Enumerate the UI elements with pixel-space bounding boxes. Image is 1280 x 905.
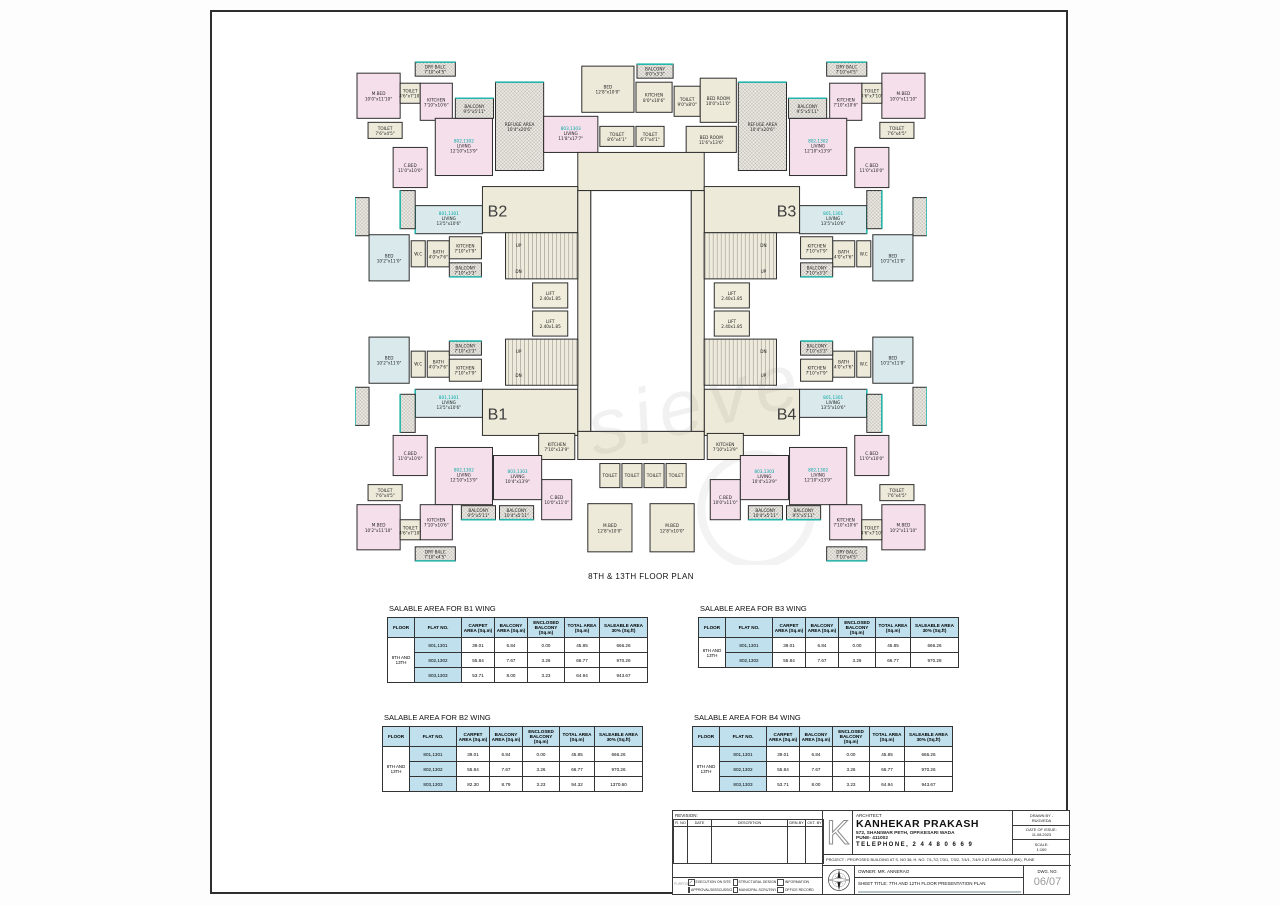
room-rect xyxy=(355,387,369,425)
room-dims-label: 7'10"x4'5" xyxy=(836,70,858,75)
table-cell: 802,1302 xyxy=(415,653,462,668)
room-dims-label: 12'8"x10'0" xyxy=(598,528,623,533)
table-row: 802,130255.847.673.2666.77970.26 xyxy=(388,653,648,668)
revision-header-cell: R. NO xyxy=(674,820,688,827)
stair-direction-label: UP xyxy=(516,349,522,354)
owner-row: OWNER: MR. ANNERAO SHEET TITLE: 7TH AND … xyxy=(823,866,1071,894)
room-dims-label: 13'5"x10'6" xyxy=(436,221,461,226)
room-rect xyxy=(691,191,704,432)
room-dims-label: 10'4"x13'9" xyxy=(752,479,777,484)
room-label: TOILET xyxy=(602,473,618,478)
room-dims-label: 10'0"x11'0" xyxy=(544,500,569,505)
room-dims-label: 9'5"x5'11" xyxy=(463,109,485,114)
room-dims-label: 9'5"x5'11" xyxy=(793,513,815,518)
room-dims-label: 2.40x1.85 xyxy=(721,296,743,301)
table-cell: 801,1301 xyxy=(720,747,767,762)
room-rect xyxy=(578,191,591,432)
table-cell: 0.00 xyxy=(528,638,565,653)
stair-direction-label: DN xyxy=(515,269,521,274)
drawn-by-cell: DRAWN BY - RUGVEDA xyxy=(1013,811,1070,826)
k-logo-icon: K xyxy=(825,814,851,852)
room-dims-label: 12'8"x10'0" xyxy=(596,90,621,95)
room-dims-label: 11'0"x10'0" xyxy=(859,456,884,461)
room-dims-label: 8'0"x3'3" xyxy=(645,72,664,77)
table-cell: 0.00 xyxy=(523,747,560,762)
stair-direction-label: UP xyxy=(516,243,522,248)
drawn-by-value: RUGVEDA xyxy=(1013,818,1070,823)
room-dims-label: 7'6"x4'5" xyxy=(887,493,906,498)
purpose-item: ✓EXECUTION ON SITE xyxy=(688,879,732,886)
stair-direction-label: DN xyxy=(515,373,521,378)
table-cell: 801,1301 xyxy=(726,638,773,653)
revision-empty-row xyxy=(674,827,824,864)
table-cell: 7.67 xyxy=(490,762,523,777)
room-dims-label: 9'5"x5'11" xyxy=(467,513,489,518)
room-dims-label: 10'2"x11'10" xyxy=(890,528,917,533)
table-cell: 970.26 xyxy=(905,762,953,777)
room-dims-label: 10'4"x20'6" xyxy=(750,127,775,132)
table-header-row: FLOORFLAT NO.CARPET AREA (Sq.m)BALCONY A… xyxy=(388,618,648,638)
table-cell: 3.23 xyxy=(523,777,560,792)
drawing-info-column: DRAWN BY - RUGVEDA DATE OF ISSUE: 11.08.… xyxy=(1012,811,1070,854)
table-cell: 802,1302 xyxy=(720,762,767,777)
sheet-title-line: SHEET TITLE: 7TH AND 12TH FLOOR PRESENTA… xyxy=(855,878,1023,890)
table-cell: 803,1303 xyxy=(410,777,457,792)
purpose-item-label: STRUCTURAL DESIGN xyxy=(739,880,777,884)
floor-cell: 8TH AND 13TH xyxy=(693,747,720,792)
room-dims-label: 10'2"x11'0" xyxy=(377,258,402,263)
salable-area-table-b3: SALABLE AREA FOR B3 WING FLOORFLAT NO.CA… xyxy=(698,604,959,668)
table-cell: 666.26 xyxy=(911,638,959,653)
purpose-item: OFFICE RECORD xyxy=(777,887,821,894)
room-dims-label: 4'6"x7'10" xyxy=(861,530,883,535)
room-dims-label: 4'6"x7'10" xyxy=(399,530,421,535)
stair-direction-label: UP xyxy=(761,269,767,274)
room-dims-label: 7'10"x4'5" xyxy=(424,70,446,75)
salable-table: FLOORFLAT NO.CARPET AREA (Sq.m)BALCONY A… xyxy=(382,726,643,792)
room-dims-label: 8'0"x10'6" xyxy=(643,98,665,103)
checkbox-icon[interactable] xyxy=(733,879,738,886)
room-rect xyxy=(867,394,882,432)
room-dims-label: 7'10"x7'9" xyxy=(806,371,828,376)
table-header-cell: CARPET AREA (Sq.m) xyxy=(462,618,495,638)
table-title: SALABLE AREA FOR B4 WING xyxy=(694,713,953,722)
room-dims-label: 11'0"x10'0" xyxy=(398,168,423,173)
table-cell: 3.23 xyxy=(833,777,870,792)
room-dims-label: 13'5"x10'6" xyxy=(436,405,461,410)
table-row: 8TH AND 13TH801,130139.016.840.0045.8566… xyxy=(383,747,643,762)
table-cell: 7.67 xyxy=(495,653,528,668)
table-row: 803,130353.718.003.2364.94943.67 xyxy=(388,668,648,683)
table-cell: 39.01 xyxy=(767,747,800,762)
project-line: PROJECT : PROPOSED BUILDING AT S. NO 36,… xyxy=(823,854,1071,866)
revision-headers: R. NODATEDESCRITIONDRN.BYCKT. BY xyxy=(674,820,824,827)
salable-table: FLOORFLAT NO.CARPET AREA (Sq.m)BALCONY A… xyxy=(698,617,959,668)
table-header-cell: SALEABLE AREA 30% (Sq.ft) xyxy=(595,727,643,747)
purpose-item-label: OFFICE RECORD xyxy=(785,888,814,892)
room-dims-label: 7'6"x4'5" xyxy=(375,493,394,498)
room-rect xyxy=(913,387,927,425)
date-value: 11.08.2023 xyxy=(1013,832,1070,837)
table-header-cell: FLAT NO. xyxy=(726,618,773,638)
room-dims-label: 7'10"x13'9" xyxy=(544,447,569,452)
checkbox-icon[interactable] xyxy=(733,887,738,894)
table-cell: 39.01 xyxy=(462,638,495,653)
salable-area-table-b2: SALABLE AREA FOR B2 WING FLOORFLAT NO.CA… xyxy=(382,713,643,792)
table-header-cell: ENCLOSED BALCONY (Sq.m) xyxy=(523,727,560,747)
table-cell: 66.77 xyxy=(560,762,595,777)
table-cell: 801,1301 xyxy=(415,638,462,653)
room-dims-label: 7'10"x3'3" xyxy=(454,349,476,354)
room-dims-label: 10'2"x11'0" xyxy=(377,361,402,366)
room-dims-label: 10'2"x11'10" xyxy=(365,528,392,533)
wing-label-b1: B1 xyxy=(488,405,508,423)
room-dims-label: 10'2"x11'0" xyxy=(881,258,906,263)
room-dims-label: 10'2"x11'0" xyxy=(881,361,906,366)
table-header-cell: BALCONY AREA (Sq.m) xyxy=(495,618,528,638)
checkbox-icon[interactable] xyxy=(777,887,784,894)
room-dims-label: 12'8"x10'0" xyxy=(660,528,685,533)
room-dims-label: 2.40x1.85 xyxy=(721,324,743,329)
room-dims-label: 10'4"x5'11" xyxy=(504,513,529,518)
room-dims-label: 7'10"x3'3" xyxy=(806,270,828,275)
table-cell: 8.79 xyxy=(490,777,523,792)
revision-header-cell: DATE xyxy=(688,820,712,827)
table-row: 802,130255.847.673.2666.77970.26 xyxy=(693,762,953,777)
architect-logo: K xyxy=(823,811,853,854)
dwg-no-value: 06/07 xyxy=(1024,876,1071,888)
revision-header-cell: DRN.BY xyxy=(788,820,806,827)
room-dims-label: 10'0"x11'10" xyxy=(365,96,392,101)
room-dims-label: 7'6"x4'5" xyxy=(887,131,906,136)
table-cell: 6.84 xyxy=(800,747,833,762)
room-dims-label: 7'10"x3'3" xyxy=(454,270,476,275)
room-dims-label: 7'10"x13'9" xyxy=(713,447,738,452)
table-cell: 666.26 xyxy=(905,747,953,762)
table-cell: 8.00 xyxy=(800,777,833,792)
table-row: 802,130255.847.673.2666.77970.26 xyxy=(383,762,643,777)
table-cell: 6.84 xyxy=(495,638,528,653)
room-dims-label: 7'10"x7'9" xyxy=(454,371,476,376)
table-header-cell: SALEABLE AREA 30% (Sq.ft) xyxy=(911,618,959,638)
table-header-cell: BALCONY AREA (Sq.m) xyxy=(806,618,839,638)
table-header-cell: FLOOR xyxy=(383,727,410,747)
room-dims-label: 6'7"x4'1" xyxy=(640,137,659,142)
salable-area-table-b4: SALABLE AREA FOR B4 WING FLOORFLAT NO.CA… xyxy=(692,713,953,792)
room-dims-label: 10'4"x5'11" xyxy=(753,513,778,518)
wing-label-b2: B2 xyxy=(488,203,508,221)
table-header-cell: FLAT NO. xyxy=(720,727,767,747)
table-header-row: FLOORFLAT NO.CARPET AREA (Sq.m)BALCONY A… xyxy=(383,727,643,747)
wing-label-b3: B3 xyxy=(777,203,797,221)
purpose-item-label: EXECUTION ON SITE xyxy=(696,880,731,884)
table-row: 8TH AND 13TH801,130139.016.840.0045.8566… xyxy=(693,747,953,762)
room-dims-label: 7'10"x10'6" xyxy=(833,523,858,528)
table-header-cell: ENCLOSED BALCONY (Sq.m) xyxy=(528,618,565,638)
floor-cell: 8TH AND 13TH xyxy=(388,638,415,683)
drawing-sheet: REFUGE AREA10'4"x20'6"REFUGE AREA10'4"x2… xyxy=(210,10,1068,894)
table-cell: 55.84 xyxy=(767,762,800,777)
room-dims-label: 7'10"x7'9" xyxy=(454,248,476,253)
table-header-cell: CARPET AREA (Sq.m) xyxy=(457,727,490,747)
table-header-cell: SALEABLE AREA 30% (Sq.ft) xyxy=(600,618,648,638)
table-header-cell: FLOOR xyxy=(699,618,726,638)
purpose-label: PURPOSE xyxy=(674,879,688,893)
room-dims-label: 11'0"x10'0" xyxy=(398,456,423,461)
room-dims-label: 12'10"x13'9" xyxy=(450,478,477,483)
table-cell: 3.26 xyxy=(523,762,560,777)
table-cell: 53.71 xyxy=(767,777,800,792)
table-title: SALABLE AREA FOR B1 WING xyxy=(389,604,648,613)
revision-label: REVISION: xyxy=(673,811,822,819)
room-dims-label: 7'6"x4'5" xyxy=(375,131,394,136)
table-header-row: FLOORFLAT NO.CARPET AREA (Sq.m)BALCONY A… xyxy=(693,727,953,747)
table-cell: 66.77 xyxy=(870,762,905,777)
room-dims-label: 12'10"x13'9" xyxy=(804,148,831,153)
table-cell: 8.00 xyxy=(495,668,528,683)
table-title: SALABLE AREA FOR B3 WING xyxy=(700,604,959,613)
room-dims-label: 4'0"x7'6" xyxy=(834,365,853,370)
room-dims-label: 7'10"x10'6" xyxy=(833,102,858,107)
revision-table: R. NODATEDESCRITIONDRN.BYCKT. BY xyxy=(673,819,824,864)
scale-cell: SCALE: 1:100 xyxy=(1013,840,1070,854)
checkbox-icon[interactable] xyxy=(777,879,784,886)
north-compass xyxy=(823,866,855,894)
table-cell: 3.26 xyxy=(839,653,876,668)
room-dims-label: 7'10"x4'5" xyxy=(836,554,858,559)
table-header-cell: ENCLOSED BALCONY (Sq.m) xyxy=(833,727,870,747)
purpose-item: MUNICIPAL SCRUTINY xyxy=(733,887,777,894)
room-label: TOILET xyxy=(668,473,684,478)
room-rect xyxy=(704,339,776,385)
title-block: REVISION: R. NODATEDESCRITIONDRN.BYCKT. … xyxy=(672,810,1070,895)
room-dims-label: 4'6"x7'10" xyxy=(399,94,421,99)
stair-direction-label: DN xyxy=(760,243,766,248)
room-rect xyxy=(578,152,704,190)
room-dims-label: 9'5"x5'11" xyxy=(797,109,819,114)
purpose-item-label: APPROVAL/DISSCUSSION xyxy=(691,888,732,892)
salable-area-table-b1: SALABLE AREA FOR B1 WING FLOORFLAT NO.CA… xyxy=(387,604,648,683)
table-cell: 64.94 xyxy=(565,668,600,683)
table-row: 803,130353.718.003.2364.94943.67 xyxy=(693,777,953,792)
purpose-item: STRUCTURAL DESIGN xyxy=(733,879,777,886)
room-label: W.C xyxy=(414,251,422,256)
table-cell: 666.26 xyxy=(595,747,643,762)
checkbox-icon[interactable]: ✓ xyxy=(688,879,695,886)
purpose-item-label: MUNICIPAL SCRUTINY xyxy=(739,888,777,892)
room-dims-label: 10'0"x11'0" xyxy=(713,500,738,505)
table-cell: 7.67 xyxy=(800,762,833,777)
revision-header-cell: CKT. BY xyxy=(806,820,824,827)
table-header-cell: BALCONY AREA (Sq.m) xyxy=(490,727,523,747)
table-header-cell: ENCLOSED BALCONY (Sq.m) xyxy=(839,618,876,638)
purpose-items: ✓EXECUTION ON SITESTRUCTURAL DESIGNINFOR… xyxy=(688,879,821,893)
room-rect xyxy=(400,191,415,229)
table-cell: 45.85 xyxy=(565,638,600,653)
table-cell: 1370.60 xyxy=(595,777,643,792)
table-header-cell: FLAT NO. xyxy=(410,727,457,747)
architect-phone: TELEPHONE, 2 4 4 8 0 6 6 9 xyxy=(856,842,1012,848)
floor-cell: 8TH AND 13TH xyxy=(383,747,410,792)
dwg-no-cell: DWG. NO: 06/07 xyxy=(1023,866,1071,894)
room-rect xyxy=(506,339,578,385)
table-header-cell: SALEABLE AREA 30% (Sq.ft) xyxy=(905,727,953,747)
room-dims-label: 13'5"x10'6" xyxy=(821,221,846,226)
fine-print-line xyxy=(858,891,1021,893)
table-row: 8TH AND 13TH801,130139.016.840.0045.8566… xyxy=(699,638,959,653)
room-dims-label: 8'6"x4'1" xyxy=(607,137,626,142)
table-header-cell: FLOOR xyxy=(388,618,415,638)
table-cell: 6.84 xyxy=(806,638,839,653)
room-dims-label: 12'10"x13'9" xyxy=(450,148,477,153)
table-cell: 55.84 xyxy=(462,653,495,668)
room-dims-label: 4'0"x7'6" xyxy=(429,254,448,259)
room-dims-label: 10'0"x11'10" xyxy=(890,96,917,101)
room-dims-label: 10'4"x13'9" xyxy=(505,479,530,484)
table-cell: 82.30 xyxy=(457,777,490,792)
room-rect xyxy=(578,431,704,459)
table-cell: 39.01 xyxy=(457,747,490,762)
table-row: 8TH AND 13TH801,130139.016.840.0045.8566… xyxy=(388,638,648,653)
salable-table: FLOORFLAT NO.CARPET AREA (Sq.m)BALCONY A… xyxy=(387,617,648,683)
table-header-row: FLOORFLAT NO.CARPET AREA (Sq.m)BALCONY A… xyxy=(699,618,959,638)
room-rect xyxy=(591,191,691,432)
table-header-cell: TOTAL AREA (Sq.m) xyxy=(565,618,600,638)
table-cell: 66.77 xyxy=(876,653,911,668)
purpose-block: PURPOSE ✓EXECUTION ON SITESTRUCTURAL DES… xyxy=(673,877,822,894)
table-cell: 3.26 xyxy=(528,653,565,668)
table-cell: 970.26 xyxy=(600,653,648,668)
compass-icon xyxy=(827,868,851,892)
table-header-cell: BALCONY AREA (Sq.m) xyxy=(800,727,833,747)
table-cell: 94.32 xyxy=(560,777,595,792)
wing-label-b4: B4 xyxy=(777,405,797,423)
page: REFUGE AREA10'4"x20'6"REFUGE AREA10'4"x2… xyxy=(0,0,1280,905)
table-cell: 801,1301 xyxy=(410,747,457,762)
room-dims-label: 2.40x1.85 xyxy=(540,296,562,301)
plan-title: 8TH & 13TH FLOOR PLAN xyxy=(355,572,927,581)
salable-table: FLOORFLAT NO.CARPET AREA (Sq.m)BALCONY A… xyxy=(692,726,953,792)
table-cell: 943.67 xyxy=(600,668,648,683)
owner-sheet-column: OWNER: MR. ANNERAO SHEET TITLE: 7TH AND … xyxy=(855,866,1023,894)
room-dims-label: 13'5"x10'6" xyxy=(821,405,846,410)
table-cell: 45.85 xyxy=(876,638,911,653)
table-header-cell: CARPET AREA (Sq.m) xyxy=(773,618,806,638)
svg-text:K: K xyxy=(826,814,849,852)
table-cell: 45.85 xyxy=(870,747,905,762)
table-cell: 970.28 xyxy=(911,653,959,668)
date-cell: DATE OF ISSUE: 11.08.2023 xyxy=(1013,826,1070,841)
table-cell: 802,1302 xyxy=(410,762,457,777)
table-cell: 3.26 xyxy=(833,762,870,777)
table-cell: 3.23 xyxy=(528,668,565,683)
room-rect xyxy=(867,191,882,229)
room-label: TOILET xyxy=(646,473,662,478)
table-cell: 55.84 xyxy=(773,653,806,668)
table-cell: 803,1303 xyxy=(415,668,462,683)
room-label: TOILET xyxy=(624,473,640,478)
room-dims-label: 11'0"x10'0" xyxy=(859,168,884,173)
purpose-item: APPROVAL/DISSCUSSION xyxy=(688,887,732,894)
table-cell: 7.67 xyxy=(806,653,839,668)
floor-plan-svg: REFUGE AREA10'4"x20'6"REFUGE AREA10'4"x2… xyxy=(355,58,927,565)
owner-line: OWNER: MR. ANNERAO xyxy=(855,866,1023,878)
room-dims-label: 10'4"x20'6" xyxy=(507,127,532,132)
table-cell: 666.26 xyxy=(600,638,648,653)
purpose-item-label: INFORMATION xyxy=(785,880,809,884)
room-dims-label: 12'10"x13'9" xyxy=(804,478,831,483)
room-rect xyxy=(913,198,927,236)
revision-block: REVISION: R. NODATEDESCRITIONDRN.BYCKT. … xyxy=(673,811,823,894)
room-label: W.C xyxy=(860,251,868,256)
architect-address2: PUNE- 411002 xyxy=(856,836,1012,841)
table-header-cell: TOTAL AREA (Sq.m) xyxy=(876,618,911,638)
table-cell: 53.71 xyxy=(462,668,495,683)
stair-direction-label: UP xyxy=(761,373,767,378)
table-header-cell: TOTAL AREA (Sq.m) xyxy=(560,727,595,747)
checkbox-icon[interactable] xyxy=(688,887,690,894)
drawn-by-label: DRAWN BY - xyxy=(1030,813,1053,818)
room-rect xyxy=(355,198,369,236)
table-cell: 803,1303 xyxy=(720,777,767,792)
table-cell: 0.00 xyxy=(833,747,870,762)
architect-row: K ARCHITECT KANHEKAR PRAKASH 572, SHANIW… xyxy=(823,811,1071,854)
table-header-cell: FLOOR xyxy=(693,727,720,747)
table-cell: 64.94 xyxy=(870,777,905,792)
room-dims-label: 2.40x1.85 xyxy=(540,324,562,329)
table-cell: 66.77 xyxy=(565,653,600,668)
room-dims-label: 4'6"x7'10" xyxy=(861,94,883,99)
title-block-right: K ARCHITECT KANHEKAR PRAKASH 572, SHANIW… xyxy=(823,811,1071,894)
room-dims-label: 7'10"x10'6" xyxy=(424,523,449,528)
room-label: W.C xyxy=(860,362,868,367)
floor-plan: REFUGE AREA10'4"x20'6"REFUGE AREA10'4"x2… xyxy=(355,58,927,565)
table-cell: 943.67 xyxy=(905,777,953,792)
room-dims-label: 7'10"x4'5" xyxy=(424,554,446,559)
dwg-no-label: DWG. NO: xyxy=(1024,869,1071,874)
revision-header-cell: DESCRITION xyxy=(712,820,788,827)
table-cell: 45.85 xyxy=(560,747,595,762)
table-header-cell: TOTAL AREA (Sq.m) xyxy=(870,727,905,747)
table-cell: 0.00 xyxy=(839,638,876,653)
purpose-item: INFORMATION xyxy=(777,879,821,886)
table-header-cell: CARPET AREA (Sq.m) xyxy=(767,727,800,747)
room-dims-label: 4'0"x7'6" xyxy=(429,365,448,370)
table-cell: 802,1302 xyxy=(726,653,773,668)
table-row: 803,130382.308.793.2394.321370.60 xyxy=(383,777,643,792)
table-header-cell: FLAT NO. xyxy=(415,618,462,638)
room-label: W.C xyxy=(414,362,422,367)
room-dims-label: 11'6"x13'6" xyxy=(699,140,724,145)
table-cell: 970.26 xyxy=(595,762,643,777)
room-dims-label: 9'0"x8'0" xyxy=(677,102,696,107)
architect-address1: 572, SHANIWAR PETH, OPP.KESARI WADA xyxy=(856,831,1012,836)
floor-cell: 8TH AND 13TH xyxy=(699,638,726,668)
table-title: SALABLE AREA FOR B2 WING xyxy=(384,713,643,722)
table-cell: 55.84 xyxy=(457,762,490,777)
room-dims-label: 10'0"x11'0" xyxy=(706,101,731,106)
room-dims-label: 7'10"x3'3" xyxy=(806,349,828,354)
room-dims-label: 11'8"x17'7" xyxy=(558,136,583,141)
architect-info: ARCHITECT KANHEKAR PRAKASH 572, SHANIWAR… xyxy=(853,811,1012,854)
table-cell: 6.84 xyxy=(490,747,523,762)
room-dims-label: 7'10"x10'6" xyxy=(424,102,449,107)
room-rect xyxy=(400,394,415,432)
scale-value: 1:100 xyxy=(1013,847,1070,852)
table-row: 802,130255.847.673.2666.77970.28 xyxy=(699,653,959,668)
table-cell: 39.01 xyxy=(773,638,806,653)
room-dims-label: 4'0"x7'6" xyxy=(834,254,853,259)
